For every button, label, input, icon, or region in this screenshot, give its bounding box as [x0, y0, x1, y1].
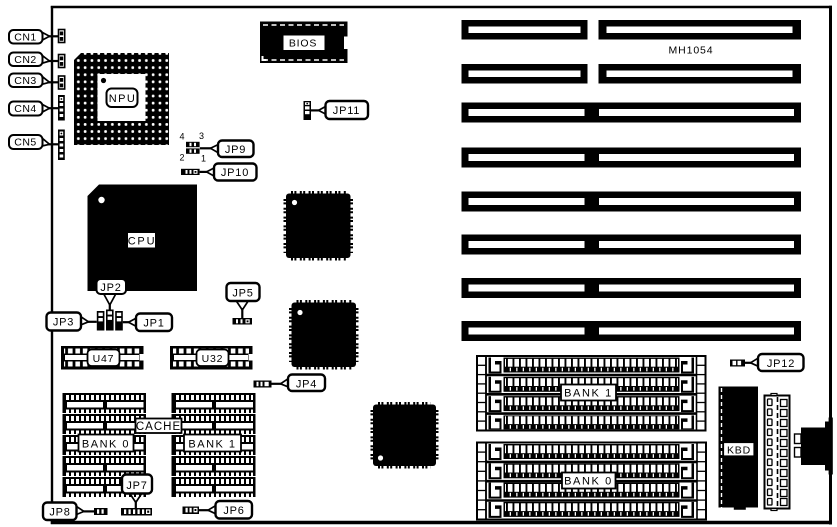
svg-text:BANK 0: BANK 0	[564, 476, 613, 488]
svg-text:MH1054: MH1054	[668, 45, 713, 57]
svg-text:CN5: CN5	[14, 137, 37, 149]
svg-text:BANK 0: BANK 0	[82, 439, 130, 451]
svg-text:CN3: CN3	[14, 75, 37, 87]
svg-text:4: 4	[179, 132, 184, 142]
svg-text:JP1: JP1	[143, 318, 164, 330]
svg-text:2: 2	[179, 153, 184, 163]
svg-text:JP12: JP12	[767, 358, 795, 370]
svg-text:U47: U47	[93, 353, 115, 365]
svg-text:1: 1	[201, 154, 206, 164]
svg-text:JP10: JP10	[221, 167, 249, 179]
svg-text:JP7: JP7	[126, 480, 147, 492]
svg-text:BANK 1: BANK 1	[188, 439, 236, 451]
svg-text:CPU: CPU	[128, 236, 157, 248]
svg-text:JP9: JP9	[225, 144, 246, 156]
svg-text:JP3: JP3	[53, 317, 74, 329]
svg-text:CN4: CN4	[14, 103, 37, 115]
svg-text:CN1: CN1	[14, 32, 37, 44]
svg-text:NPU: NPU	[109, 93, 136, 105]
svg-text:KBD: KBD	[727, 445, 751, 457]
svg-text:BANK 1: BANK 1	[564, 388, 613, 400]
svg-text:CACHE: CACHE	[136, 421, 181, 433]
svg-text:CN2: CN2	[14, 54, 37, 66]
svg-text:JP5: JP5	[232, 288, 253, 300]
svg-text:U32: U32	[202, 353, 224, 365]
svg-text:3: 3	[199, 131, 204, 141]
svg-text:JP11: JP11	[333, 105, 360, 117]
svg-text:JP4: JP4	[296, 379, 317, 391]
svg-text:JP8: JP8	[49, 507, 70, 519]
svg-text:JP2: JP2	[100, 282, 121, 294]
svg-text:JP6: JP6	[223, 505, 244, 517]
svg-text:BIOS: BIOS	[289, 38, 317, 50]
